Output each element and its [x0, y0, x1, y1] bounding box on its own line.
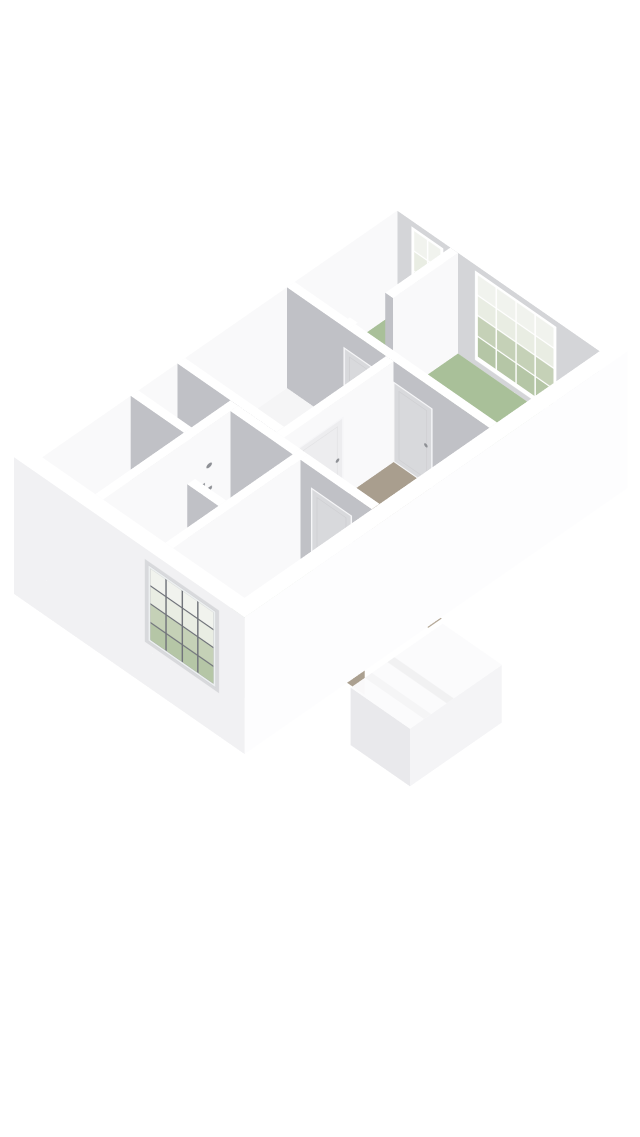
page-background: { "scene": { "type": "3d-floorplan-isome…	[0, 0, 640, 1137]
door-panel	[399, 391, 427, 480]
shower-head	[206, 461, 212, 469]
